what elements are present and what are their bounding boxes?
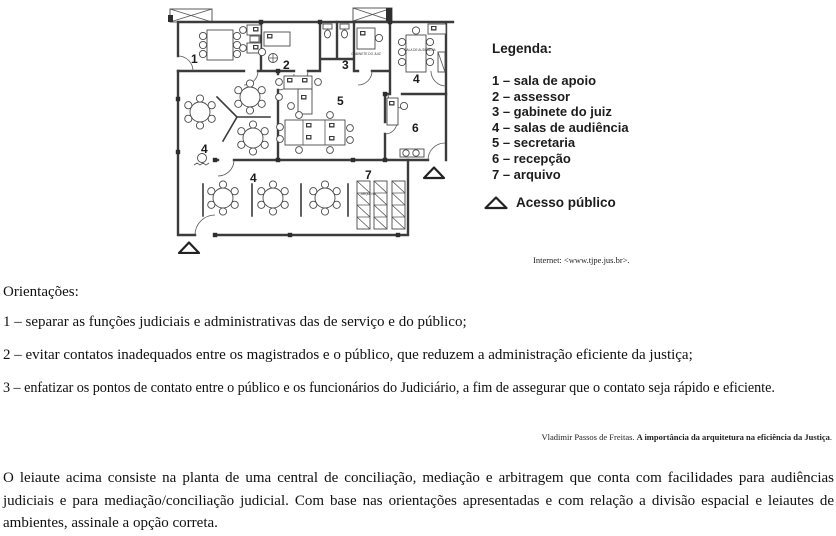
room-label-assessor: 2 [283,58,290,72]
room-label-secretaria: 5 [337,94,344,108]
micro-label-arquivo: ARQUIVO [361,192,376,196]
legend-item-7: 7 – arquivo [492,167,629,183]
room-label-recepcao: 6 [412,121,419,135]
legend-item-1: 1 – sala de apoio [492,73,629,89]
legend-item-4: 4 – salas de audiência [492,120,629,136]
legend-item-6: 6 – recepção [492,151,629,167]
legend: Legenda: 1 – sala de apoio 2 – assessor … [492,41,629,210]
orientation-item-3: 3 – enfatizar os pontos de contato entre… [3,380,775,397]
legend-access-row: Acesso público [483,195,629,210]
room-label-arquivo: 7 [365,168,372,182]
legend-item-2: 2 – assessor [492,89,629,105]
orientations-title: Orientações: [3,284,79,301]
room1-furniture [199,25,261,60]
orientation-item-1: 1 – separar as funções judiciais e admin… [3,314,467,331]
public-access-triangle-bottom [179,243,199,254]
legend-title: Legenda: [492,41,629,56]
source-citation: Internet: <www.tjpe.jus.br>. [533,255,630,265]
public-access-triangle-right [424,168,444,179]
room-label-sala-apoio: 1 [191,52,198,66]
attribution-suffix: . [830,432,832,442]
attribution-work-title: A importância da arquitetura na eficiênc… [637,432,830,442]
waiting-area-tables [185,80,269,165]
room-label-audiencia-low: 4 [250,171,257,185]
legend-item-5: 5 – secretaria [492,135,629,151]
room-label-audiencia-mid: 4 [201,142,208,156]
attribution-author: Vladimir Passos de Freitas. [542,432,637,442]
room7-shelving [357,181,405,229]
orientation-item-2: 2 – evitar contatos inadequados entre os… [3,347,693,364]
room-label-audiencia-top: 4 [413,72,420,86]
room-label-gabinete: 3 [342,58,349,72]
micro-label-sala-de-audiencia: SALA DE AUDIÊNCIA [404,47,436,52]
floor-plan-drawing: 1 2 3 4 4 4 5 6 7 GABINETE DO JUIZ SALA … [158,2,464,254]
public-access-icon [483,195,509,210]
ceiling-beams [168,8,392,22]
legend-item-3: 3 – gabinete do juiz [492,104,629,120]
micro-label-gabinete-do-juiz: GABINETE DO JUIZ [351,52,380,56]
hearing-bay-tables [208,181,341,215]
question-text: O leiaute acima consiste na planta de um… [3,467,834,535]
room5-furniture [276,76,354,153]
room3-furniture [357,28,383,49]
floor-plan: 1 2 3 4 4 4 5 6 7 GABINETE DO JUIZ SALA … [158,2,464,254]
attribution: Vladimir Passos de Freitas. A importânci… [542,432,833,442]
legend-access-label: Acesso público [516,195,616,210]
